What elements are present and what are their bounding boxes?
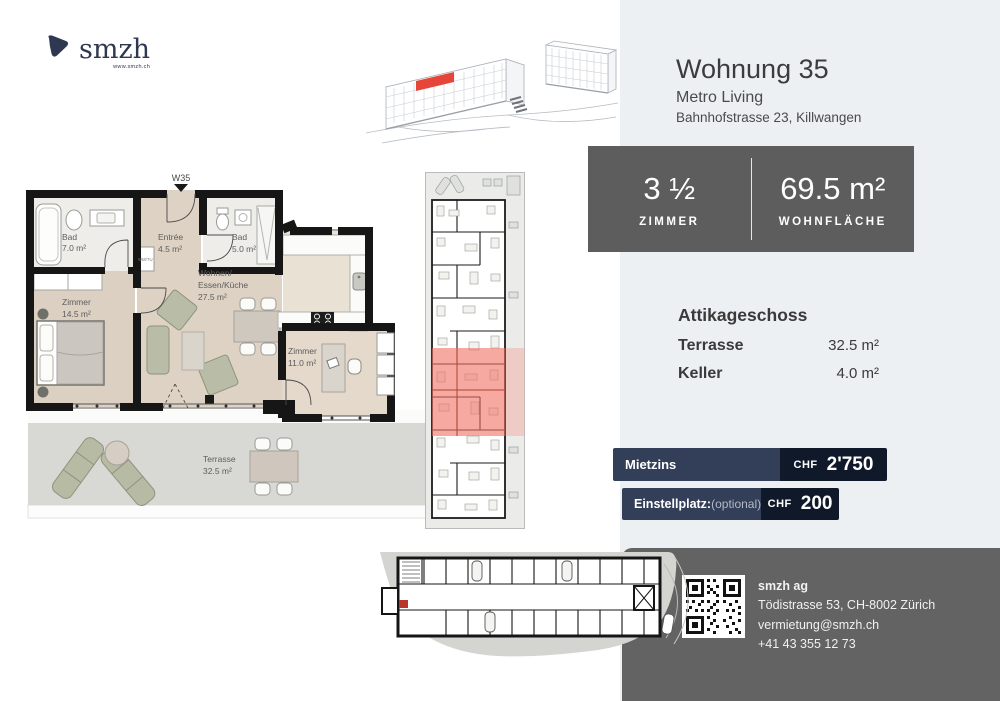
room-label-entree-area: 4.5 m²: [158, 244, 182, 254]
room-label-zimmer1-area: 14.5 m²: [62, 309, 91, 319]
rent-price-bar: Mietzins CHF 2'750: [613, 448, 887, 481]
contact-address: Tödistrasse 53, CH-8002 Zürich: [758, 596, 935, 615]
floor-heading: Attikageschoss: [678, 305, 879, 326]
logo-wordmark: smzh: [79, 36, 150, 63]
shower-icon: [257, 206, 276, 264]
parking-label: Einstellplatz:: [634, 497, 711, 511]
apartment-floorplan: W35 Bad 7.0 m² Zimmer 14.5 m² Entrée 4.5…: [20, 170, 430, 530]
header-block: Wohnung 35 Metro Living Bahnhofstrasse 2…: [676, 55, 986, 125]
stool-icon: [38, 387, 49, 398]
door-mat: [205, 395, 214, 404]
unit-marker-label: W35: [172, 173, 191, 183]
vanity-icon: [90, 210, 124, 226]
wardrobe-icon: [34, 272, 68, 290]
terrasse-label: Terrasse: [678, 337, 744, 355]
parking-currency: CHF: [768, 498, 792, 510]
contact-company: smzh ag: [758, 577, 935, 596]
floor-overview-plan: [425, 172, 525, 529]
sink-icon: [235, 210, 251, 225]
expose-page: smzh www.smzh.ch: [0, 0, 1000, 701]
highlighted-unit-zone: [432, 348, 505, 436]
stool-icon: [38, 309, 49, 320]
project-name: Metro Living: [676, 89, 986, 107]
room-label-wohnen-line2: Essen/Küche: [198, 280, 248, 290]
parking-label-segment: Einstellplatz:(optional): [622, 488, 761, 520]
stats-area: 69.5 m² WOHNFLÄCHE: [752, 171, 915, 228]
building-right: [546, 41, 616, 93]
contact-phone: +41 43 355 12 73: [758, 635, 935, 654]
rent-amount: 2'750: [827, 454, 874, 476]
area-value: 69.5 m²: [752, 171, 915, 207]
room-label-bad1-area: 7.0 m²: [62, 243, 86, 253]
room-label-zimmer1-name: Zimmer: [62, 297, 91, 307]
building-left: [386, 59, 524, 129]
bed-icon: [37, 321, 104, 385]
side-table-icon: [105, 441, 129, 465]
room-label-bad2-name: Bad: [232, 232, 247, 242]
room-label-zimmer2-name: Zimmer: [288, 346, 317, 356]
stats-rooms: 3 ½ ZIMMER: [588, 171, 751, 228]
elevator-icon: [634, 586, 654, 610]
room-label-terrasse-name: Terrasse: [203, 454, 236, 464]
room-label-zimmer2-area: 11.0 m²: [288, 358, 316, 368]
appliance-label: WM/TU: [138, 257, 153, 262]
stats-box: 3 ½ ZIMMER 69.5 m² WOHNFLÄCHE: [588, 146, 914, 252]
area-label: WOHNFLÄCHE: [752, 216, 915, 228]
rent-label: Mietzins: [625, 457, 676, 472]
desk-icon: [322, 344, 345, 392]
parking-price-bar: Einstellplatz:(optional) CHF 200: [622, 488, 839, 520]
room-label-entree-name: Entrée: [158, 232, 183, 242]
terrasse-value: 32.5 m²: [828, 337, 879, 354]
office-chair-icon: [348, 359, 361, 374]
bathtub-icon: [36, 204, 61, 265]
rooms-value: 3 ½: [588, 171, 751, 207]
site-rendering: [358, 5, 623, 150]
room-label-bad1-name: Bad: [62, 232, 77, 242]
kitchen-sink-icon: [353, 273, 366, 290]
sink-icon: [66, 210, 82, 230]
keller-label: Keller: [678, 365, 722, 383]
parking-amount: 200: [801, 493, 833, 515]
smzh-logo-icon: [45, 34, 71, 58]
rooms-label: ZIMMER: [588, 216, 751, 228]
keller-value: 4.0 m²: [836, 365, 879, 382]
room-label-wohnen-area: 27.5 m²: [198, 292, 227, 302]
contact-text: smzh ag Tödistrasse 53, CH-8002 Zürich v…: [758, 577, 935, 655]
rent-label-segment: Mietzins: [613, 448, 780, 481]
details-row-terrasse: Terrasse 32.5 m²: [678, 337, 879, 355]
contact-email[interactable]: vermietung@smzh.ch: [758, 616, 935, 635]
parking-note: (optional): [711, 497, 761, 511]
highlighted-terrace-zone: [506, 348, 525, 436]
details-row-keller: Keller 4.0 m²: [678, 365, 879, 383]
coffee-table-icon: [182, 332, 204, 370]
details-block: Attikageschoss Terrasse 32.5 m² Keller 4…: [678, 305, 879, 393]
brand-logo: smzh www.smzh.ch: [45, 34, 215, 74]
project-address: Bahnhofstrasse 23, Killwangen: [676, 110, 986, 125]
room-label-bad2-area: 5.0 m²: [232, 244, 256, 254]
sofa-icon: [147, 326, 169, 374]
rent-currency: CHF: [794, 459, 818, 471]
rent-amount-segment: CHF 2'750: [780, 448, 887, 481]
room-label-wohnen-line1: Wohnen/: [198, 268, 233, 278]
page-title: Wohnung 35: [676, 55, 986, 85]
toilet-icon: [217, 208, 229, 230]
parking-amount-segment: CHF 200: [761, 488, 839, 520]
wardrobe-icon: [68, 272, 102, 290]
garage-plan: [368, 540, 693, 665]
room-label-terrasse-area: 32.5 m²: [203, 466, 232, 476]
highlighted-parking-space: [399, 600, 408, 608]
